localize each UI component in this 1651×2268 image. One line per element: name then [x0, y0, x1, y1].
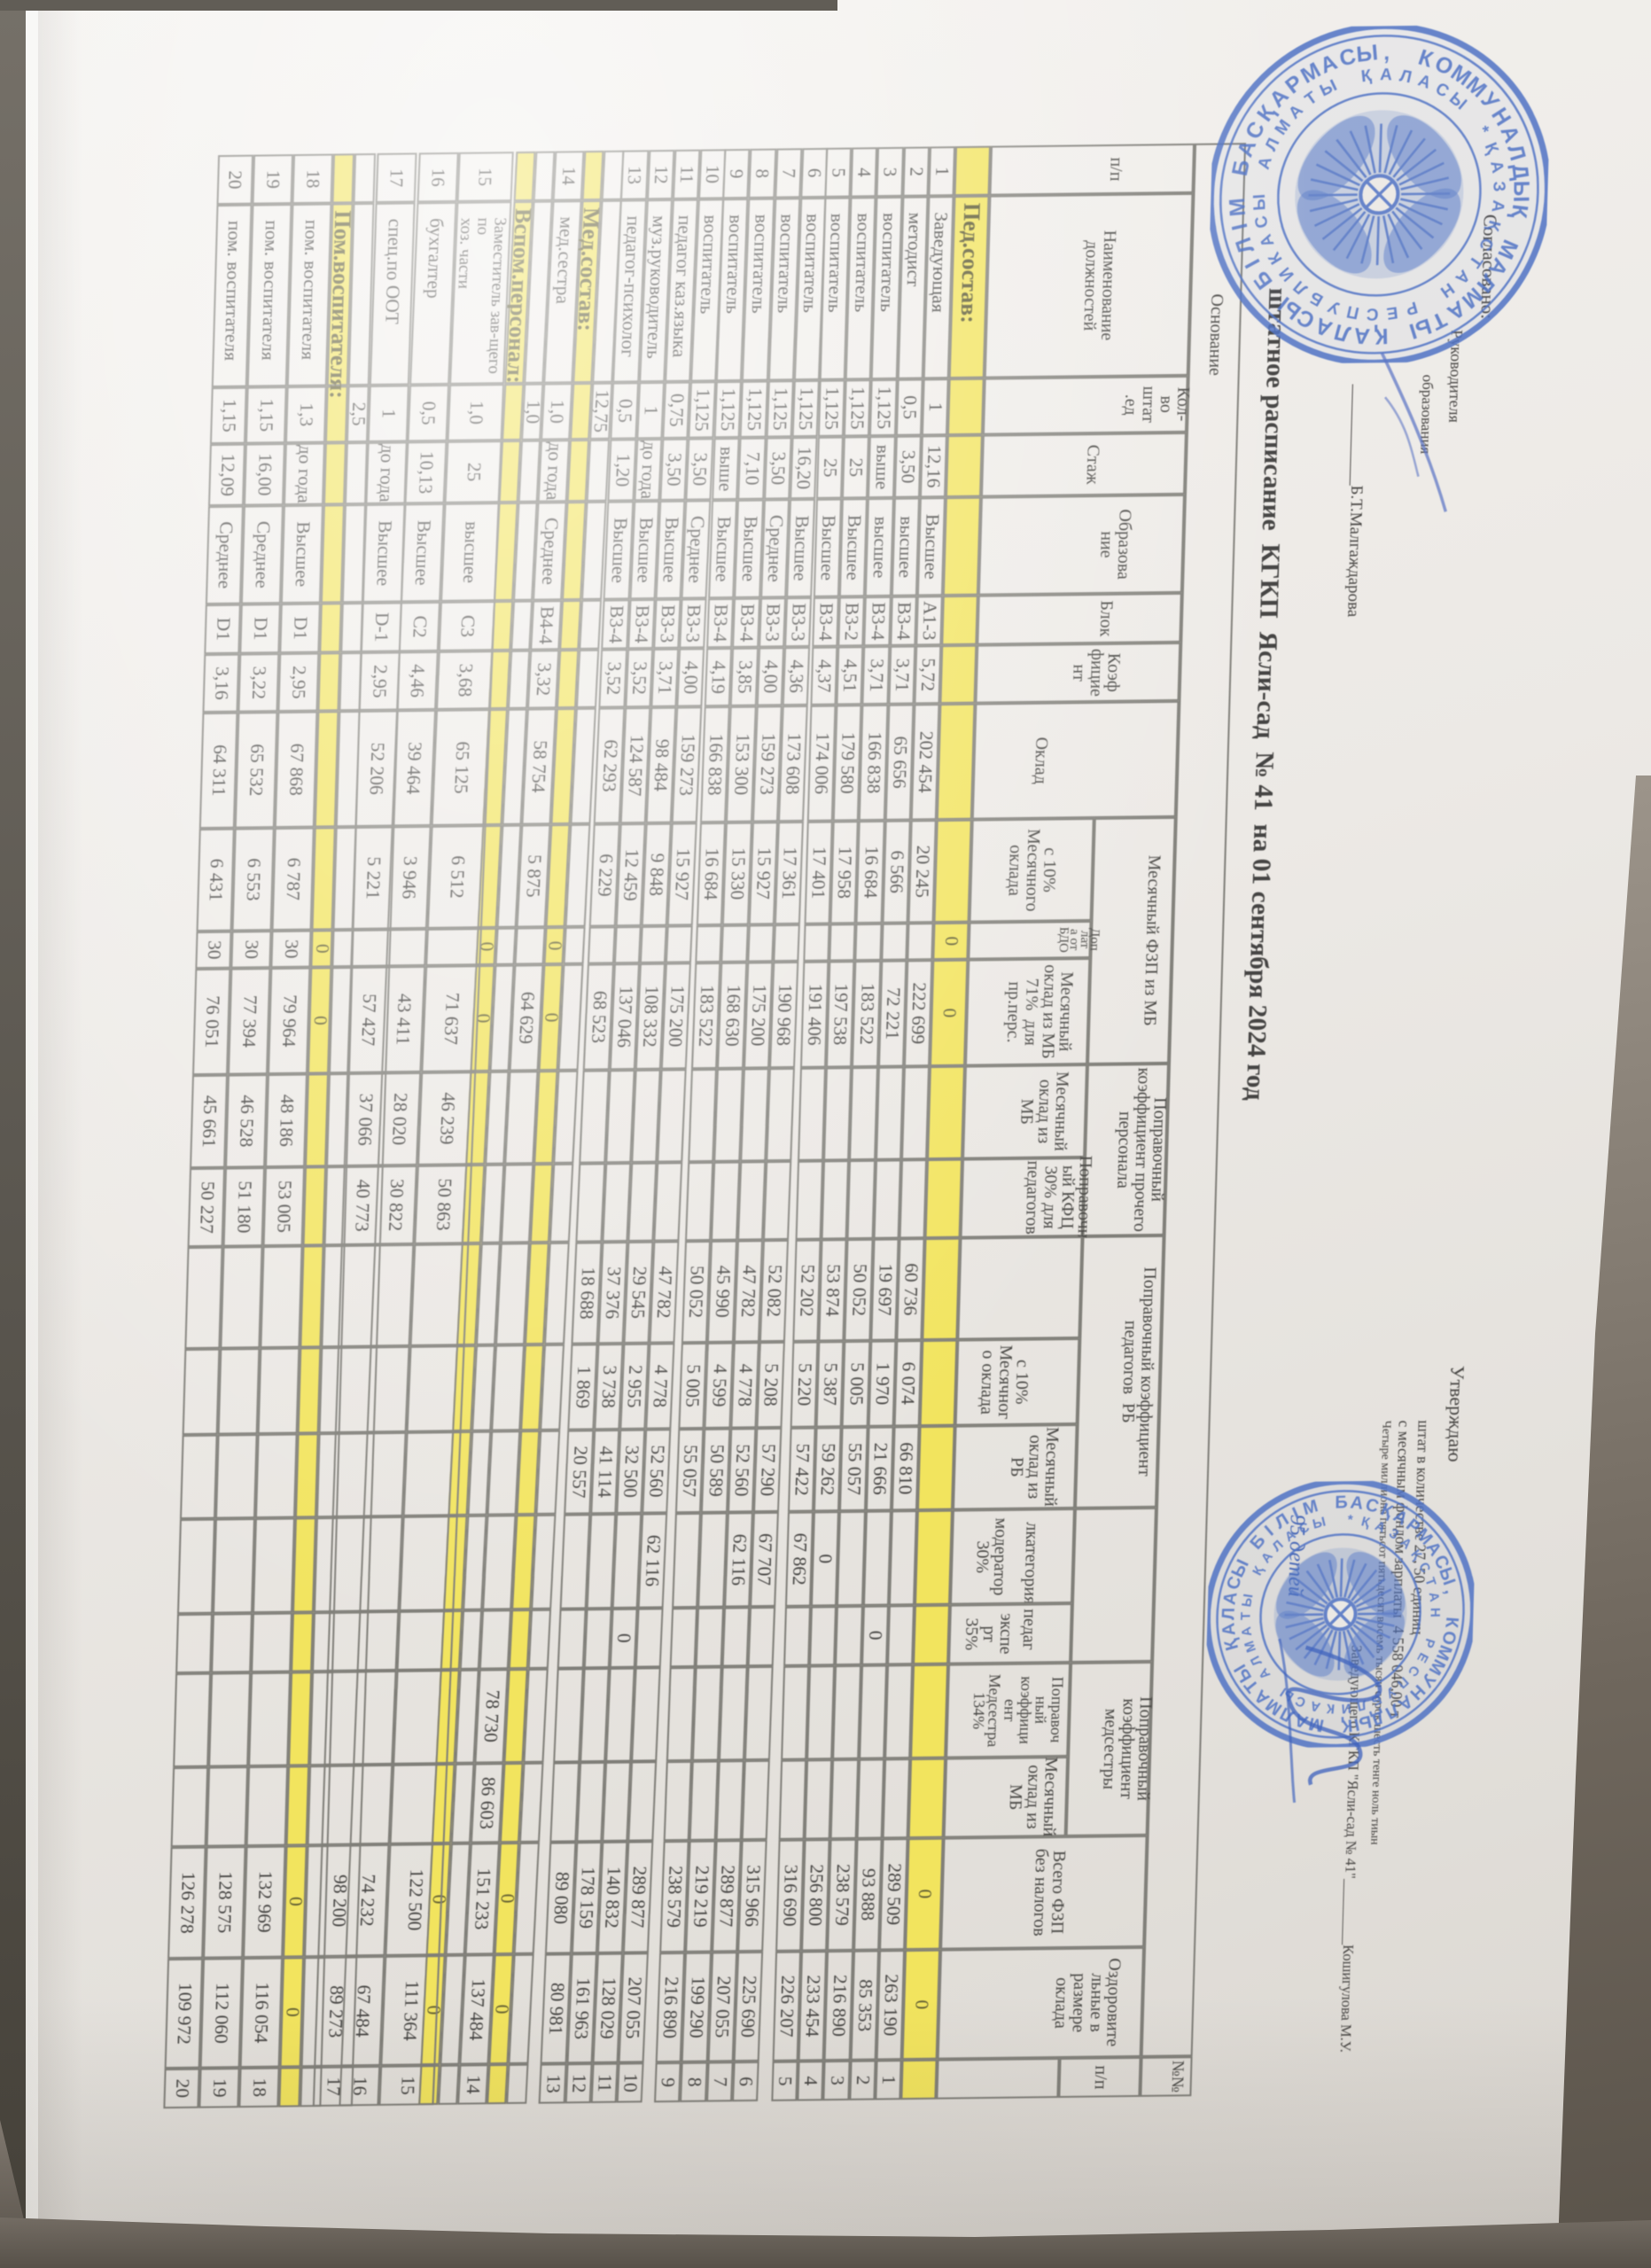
- svg-text:Ы: Ы: [1355, 40, 1379, 67]
- svg-text:Ы: Ы: [1508, 181, 1533, 203]
- svg-text:А: А: [1219, 1591, 1241, 1606]
- svg-text:Ы: Ы: [1239, 1593, 1256, 1608]
- svg-text:А: А: [1487, 199, 1507, 214]
- svg-text:Т: Т: [1238, 1612, 1253, 1620]
- svg-text:К: К: [1441, 1617, 1461, 1630]
- svg-text:А: А: [1380, 66, 1393, 84]
- svg-text:З: З: [1489, 181, 1507, 192]
- svg-text:Е: Е: [1386, 302, 1399, 323]
- svg-text:А: А: [1219, 1622, 1239, 1637]
- svg-text:С: С: [1366, 304, 1379, 323]
- svg-text:Ы: Ы: [1250, 193, 1269, 211]
- svg-text:Б: Б: [1335, 1493, 1348, 1512]
- svg-text:М: М: [1225, 197, 1250, 217]
- svg-text:Н: Н: [1427, 1608, 1442, 1617]
- svg-text:Л: Л: [1219, 1608, 1239, 1620]
